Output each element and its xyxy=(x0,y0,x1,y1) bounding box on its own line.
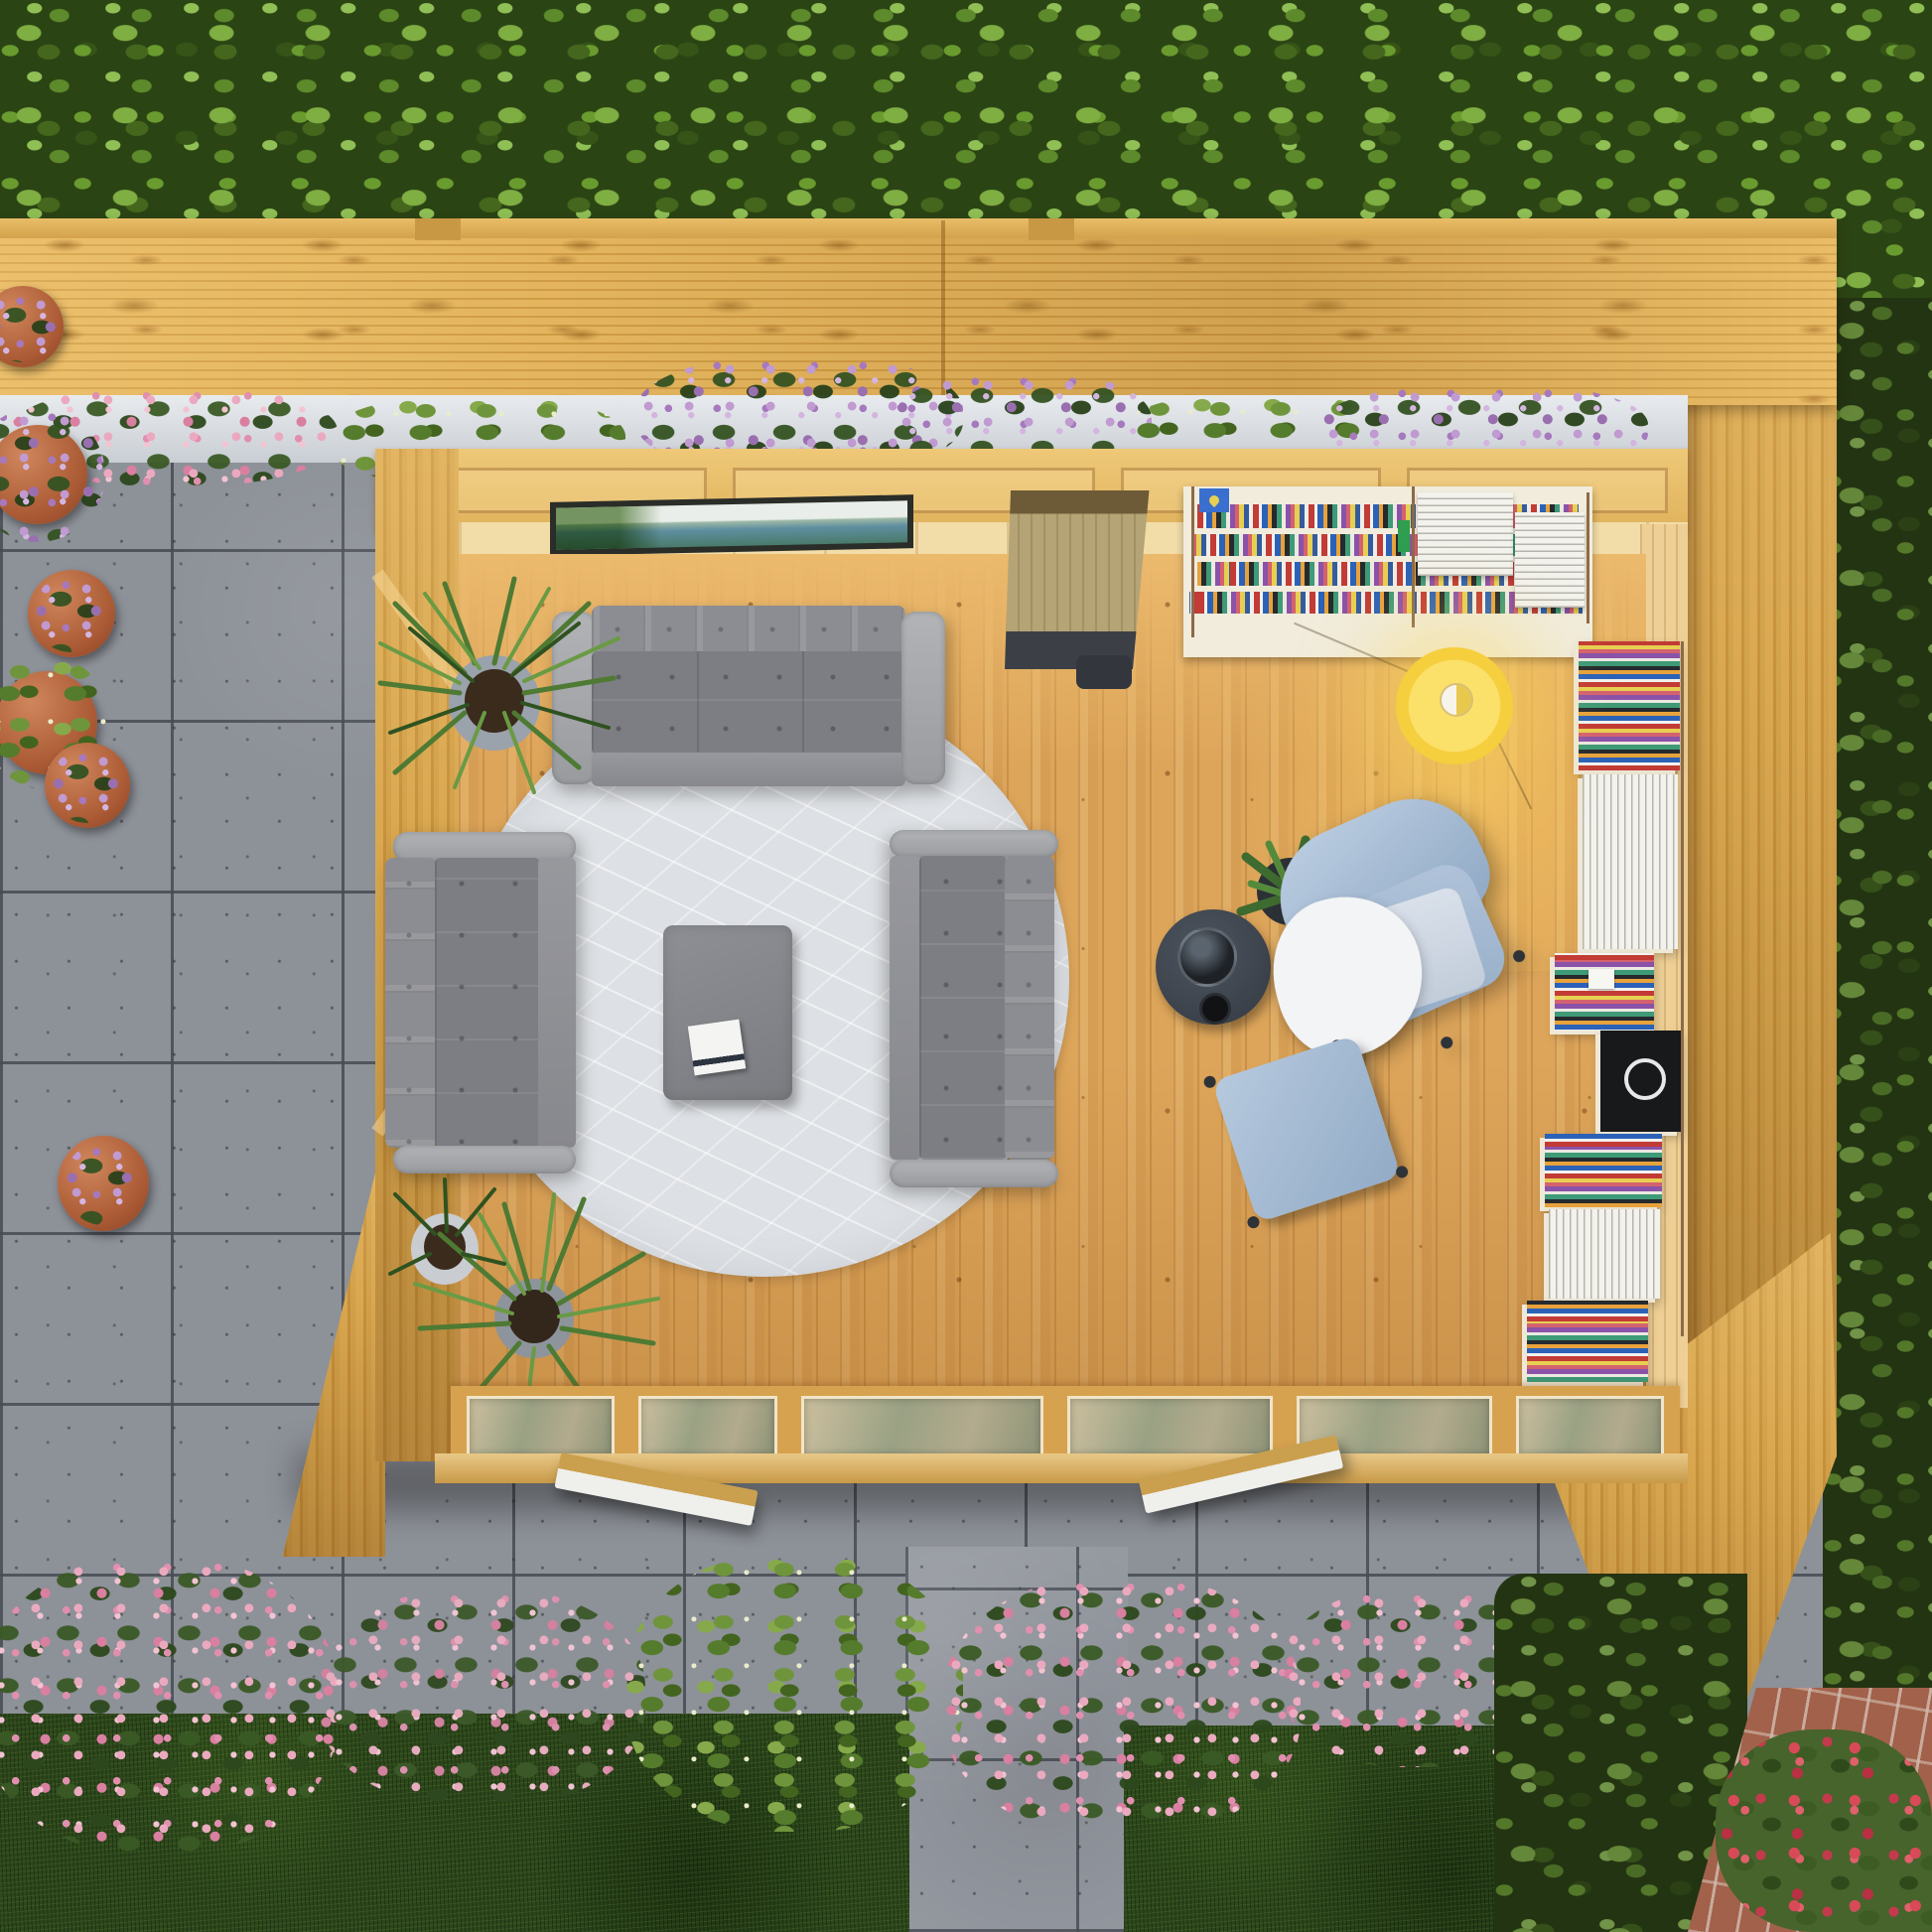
terracotta-pot xyxy=(28,570,115,657)
small-black-bowl xyxy=(1199,993,1231,1025)
window-pane xyxy=(1516,1396,1664,1457)
terracotta-pot xyxy=(58,1136,149,1231)
sofa-seat-cushions xyxy=(435,858,540,1148)
garden-room-aerial-scene: Top-down 3D render of a timber garden ro… xyxy=(0,0,1932,1932)
sofa-front-rail xyxy=(538,858,576,1148)
pot-flowers xyxy=(50,748,125,823)
deck-joint-tab xyxy=(1029,218,1074,240)
window-pane xyxy=(467,1396,615,1457)
sofa-arm xyxy=(890,1160,1058,1187)
desk-wood-grain xyxy=(1005,513,1154,631)
desk-unit xyxy=(1005,490,1154,669)
shelf-brass-rail xyxy=(1681,641,1684,1336)
sofa-two-seat-left xyxy=(385,832,584,1173)
door-pane xyxy=(801,1396,1044,1457)
shelf-brass-rail xyxy=(1191,486,1194,637)
sofa-front-rail xyxy=(890,856,921,1160)
heart-mark xyxy=(1207,493,1221,507)
pot-flowers xyxy=(0,291,59,362)
book-on-ottoman xyxy=(688,1020,746,1076)
black-album-s-logo xyxy=(1600,1031,1682,1132)
bookshelf-rear-wall xyxy=(1183,486,1592,657)
flower-bed-cluster xyxy=(0,1557,338,1855)
lamp-fixture xyxy=(1440,683,1473,717)
clerestory-reflection xyxy=(556,500,907,549)
white-book-stack xyxy=(1583,774,1678,949)
laptop-on-shelf xyxy=(1588,969,1614,989)
door-pane xyxy=(1067,1396,1272,1457)
rose-bush xyxy=(1716,1729,1932,1932)
flower-bed-cluster xyxy=(943,1577,1301,1835)
clerestory-window xyxy=(550,494,913,556)
desk-chair xyxy=(1076,655,1132,689)
chair-caster xyxy=(1511,948,1527,964)
flower-bed-cluster xyxy=(318,1588,645,1807)
glass-teapot xyxy=(1177,927,1237,987)
chair-caster xyxy=(1439,1035,1454,1050)
book-segment xyxy=(1579,641,1680,770)
blue-heart-book xyxy=(1199,488,1229,512)
deck-joint-tab xyxy=(415,218,461,240)
sofa-seat-cushions xyxy=(919,856,1007,1160)
pot-flowers xyxy=(64,1142,144,1226)
glazed-window-row xyxy=(451,1386,1680,1461)
ottoman-coffee-table xyxy=(663,925,792,1100)
pendant-lamp-lit xyxy=(1396,647,1513,764)
hedge-right xyxy=(1823,298,1932,1737)
white-book-stack xyxy=(1549,1209,1660,1299)
white-book-stack xyxy=(1515,512,1585,608)
flower-bed-bush xyxy=(625,1554,963,1832)
white-book-stack xyxy=(1418,492,1513,576)
s-logo-icon xyxy=(1624,1058,1666,1100)
terracotta-pot xyxy=(0,425,87,524)
deck-seam xyxy=(941,220,945,403)
shelf-brass-rail xyxy=(1587,492,1589,623)
window-pane xyxy=(638,1396,777,1457)
book-segment xyxy=(1555,953,1654,1031)
sofa-back-cushions xyxy=(385,858,437,1148)
book-segment xyxy=(1527,1301,1648,1382)
book-segment xyxy=(1545,1134,1662,1207)
sofa-arm xyxy=(890,830,1058,858)
dracaena-plant-top-left xyxy=(365,564,673,862)
sofa-two-seat-right xyxy=(890,830,1066,1187)
sofa-arm xyxy=(901,612,945,784)
sofa-back-cushions xyxy=(1005,856,1054,1160)
deck-rim xyxy=(0,218,1837,238)
terracotta-pot xyxy=(45,743,130,828)
bookshelf-right-wall xyxy=(1525,641,1688,1400)
garden-room xyxy=(375,405,1688,1459)
shelf-brass-rail xyxy=(1412,486,1415,627)
side-table xyxy=(1156,909,1271,1025)
green-book-accent xyxy=(1398,520,1410,552)
pot-flowers xyxy=(33,575,109,651)
